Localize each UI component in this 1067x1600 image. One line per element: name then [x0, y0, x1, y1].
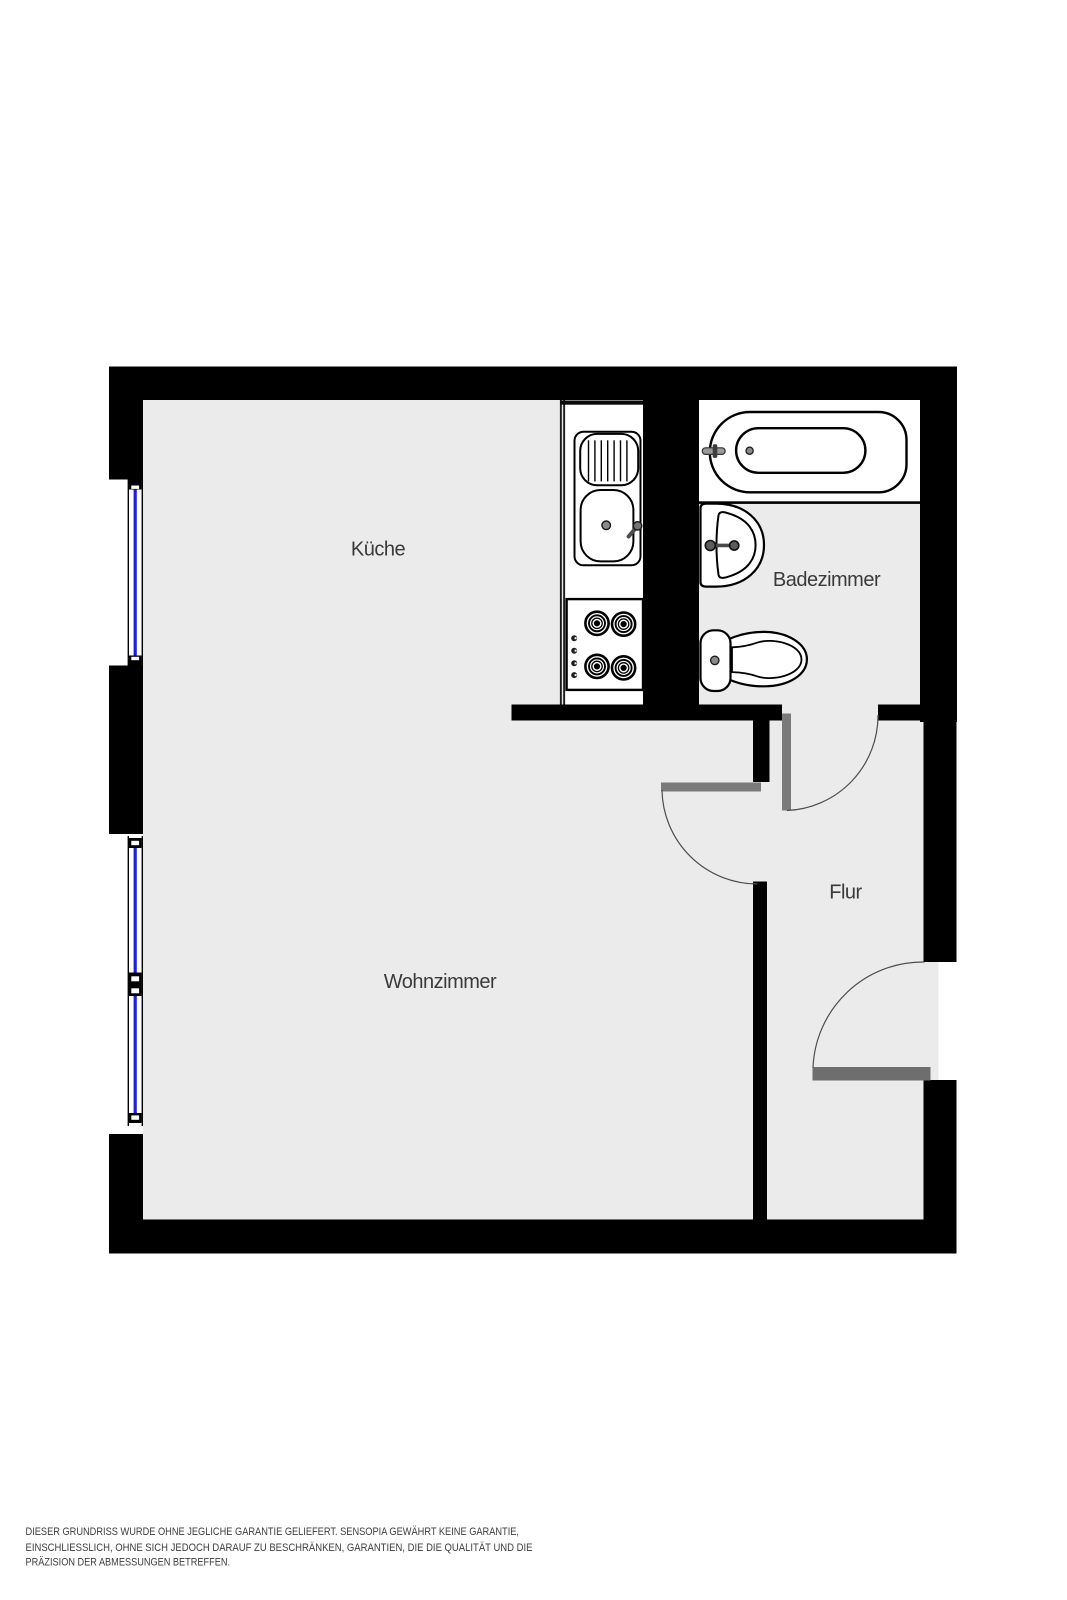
svg-text:PRÄZISION DER ABMESSUNGEN BETR: PRÄZISION DER ABMESSUNGEN BETREFFEN. [26, 1557, 231, 1569]
svg-text:EINSCHLIESSLICH, OHNE SICH JED: EINSCHLIESSLICH, OHNE SICH JEDOCH DARAUF… [26, 1542, 533, 1554]
svg-text:Flur: Flur [829, 882, 862, 904]
svg-text:Badezimmer: Badezimmer [773, 569, 881, 591]
svg-text:Küche: Küche [351, 539, 406, 561]
svg-text:DIESER GRUNDRISS WURDE OHNE JE: DIESER GRUNDRISS WURDE OHNE JEGLICHE GAR… [26, 1526, 520, 1538]
svg-text:Wohnzimmer: Wohnzimmer [384, 971, 497, 993]
